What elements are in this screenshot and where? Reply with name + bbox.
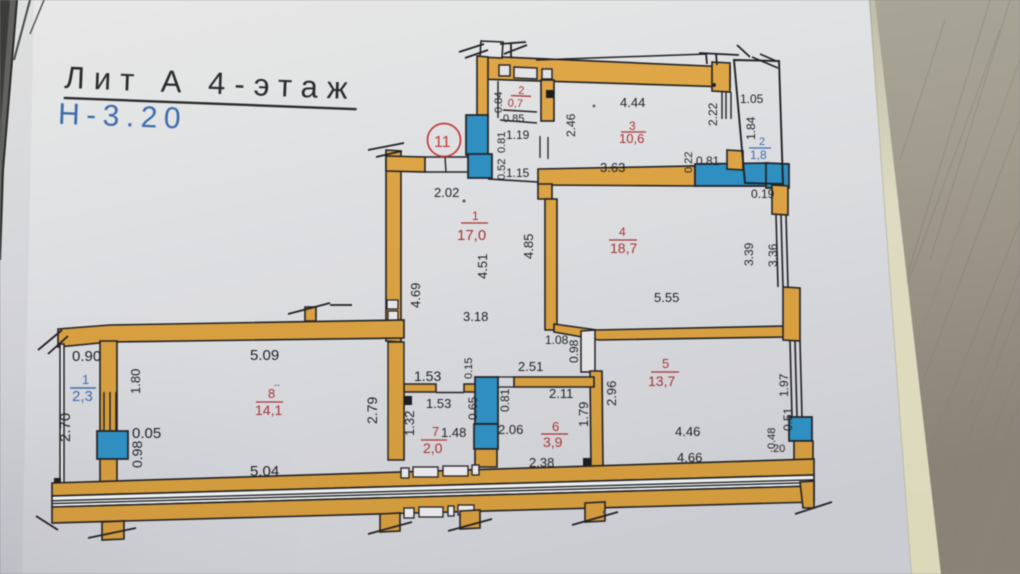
svg-text:0.15: 0.15 (463, 358, 475, 379)
svg-text:2,3: 2,3 (72, 388, 93, 405)
svg-text:5.55: 5.55 (654, 290, 679, 305)
svg-text:18,7: 18,7 (610, 240, 637, 256)
svg-text:2: 2 (518, 85, 525, 97)
svg-text:1.80: 1.80 (128, 369, 143, 394)
svg-text:2.06: 2.06 (498, 422, 523, 437)
svg-text:5.04: 5.04 (250, 463, 279, 480)
svg-text:2.70: 2.70 (57, 413, 74, 442)
svg-text:..: .. (274, 377, 280, 389)
svg-text:1.79: 1.79 (576, 402, 591, 427)
svg-text:3.63: 3.63 (600, 160, 625, 175)
svg-text:1.48: 1.48 (441, 425, 466, 440)
svg-text:10,6: 10,6 (619, 131, 644, 146)
svg-text:2.02: 2.02 (434, 185, 459, 200)
svg-text:.20: .20 (770, 443, 785, 455)
svg-text:0.65: 0.65 (466, 396, 480, 420)
svg-text:0.22: 0.22 (683, 152, 695, 173)
svg-text:0,7: 0,7 (508, 98, 524, 111)
svg-text:13,7: 13,7 (648, 373, 675, 389)
svg-text:1: 1 (82, 372, 89, 387)
svg-text:4.69: 4.69 (408, 283, 423, 308)
svg-text:4.51: 4.51 (475, 254, 490, 279)
svg-text:2.11: 2.11 (549, 386, 573, 401)
svg-text:2.46: 2.46 (564, 113, 578, 137)
svg-text:3,9: 3,9 (543, 434, 563, 450)
svg-text:2.96: 2.96 (604, 381, 619, 406)
svg-text:3.39: 3.39 (742, 242, 756, 266)
svg-text:0.19: 0.19 (751, 187, 775, 201)
svg-text:0.81: 0.81 (696, 154, 720, 168)
svg-text:5.09: 5.09 (250, 347, 279, 364)
svg-text:1.05: 1.05 (740, 92, 764, 106)
svg-text:6: 6 (552, 419, 559, 434)
svg-text:1.97: 1.97 (777, 373, 791, 397)
svg-text:1.32: 1.32 (402, 411, 417, 436)
svg-text:0.52: 0.52 (496, 159, 508, 180)
svg-text:1.08: 1.08 (545, 333, 569, 347)
svg-text:4: 4 (619, 225, 626, 239)
svg-text:0.51: 0.51 (781, 407, 795, 431)
svg-text:Н-3.20: Н-3.20 (58, 98, 188, 136)
svg-text:2: 2 (759, 136, 765, 148)
svg-text:4.85: 4.85 (521, 234, 536, 259)
svg-text:2.22: 2.22 (706, 102, 720, 126)
svg-text:14,1: 14,1 (255, 402, 282, 418)
svg-text:1: 1 (472, 209, 479, 223)
svg-text:5: 5 (662, 356, 669, 371)
svg-text:3.36: 3.36 (766, 243, 780, 267)
svg-text:0.90: 0.90 (72, 348, 101, 365)
svg-text:0.84: 0.84 (493, 92, 505, 113)
svg-text:1.19: 1.19 (506, 128, 530, 142)
svg-text:11: 11 (434, 134, 451, 151)
svg-text:0.81: 0.81 (496, 132, 508, 153)
svg-text:1,8: 1,8 (750, 148, 767, 162)
svg-text:3.18: 3.18 (463, 309, 488, 324)
svg-text:0.05: 0.05 (132, 425, 161, 442)
svg-text:0.85: 0.85 (503, 113, 524, 125)
svg-text:0.81: 0.81 (498, 388, 512, 412)
svg-text:0.98: 0.98 (567, 339, 581, 363)
svg-text:2.79: 2.79 (364, 397, 380, 424)
svg-text:1.53: 1.53 (414, 368, 441, 384)
svg-text:4.66: 4.66 (677, 450, 702, 465)
svg-text:7: 7 (432, 424, 439, 439)
svg-text:4.46: 4.46 (675, 424, 700, 439)
svg-text:2,0: 2,0 (423, 440, 443, 456)
svg-text:1.84: 1.84 (744, 116, 758, 140)
svg-text:2.51: 2.51 (518, 359, 543, 374)
svg-text:1.53: 1.53 (426, 396, 451, 411)
svg-text:1.15: 1.15 (506, 166, 530, 180)
svg-text:17,0: 17,0 (457, 227, 486, 244)
svg-text:4.44: 4.44 (620, 95, 645, 110)
svg-text:0.98: 0.98 (129, 441, 145, 468)
svg-text:2.38: 2.38 (529, 455, 554, 470)
